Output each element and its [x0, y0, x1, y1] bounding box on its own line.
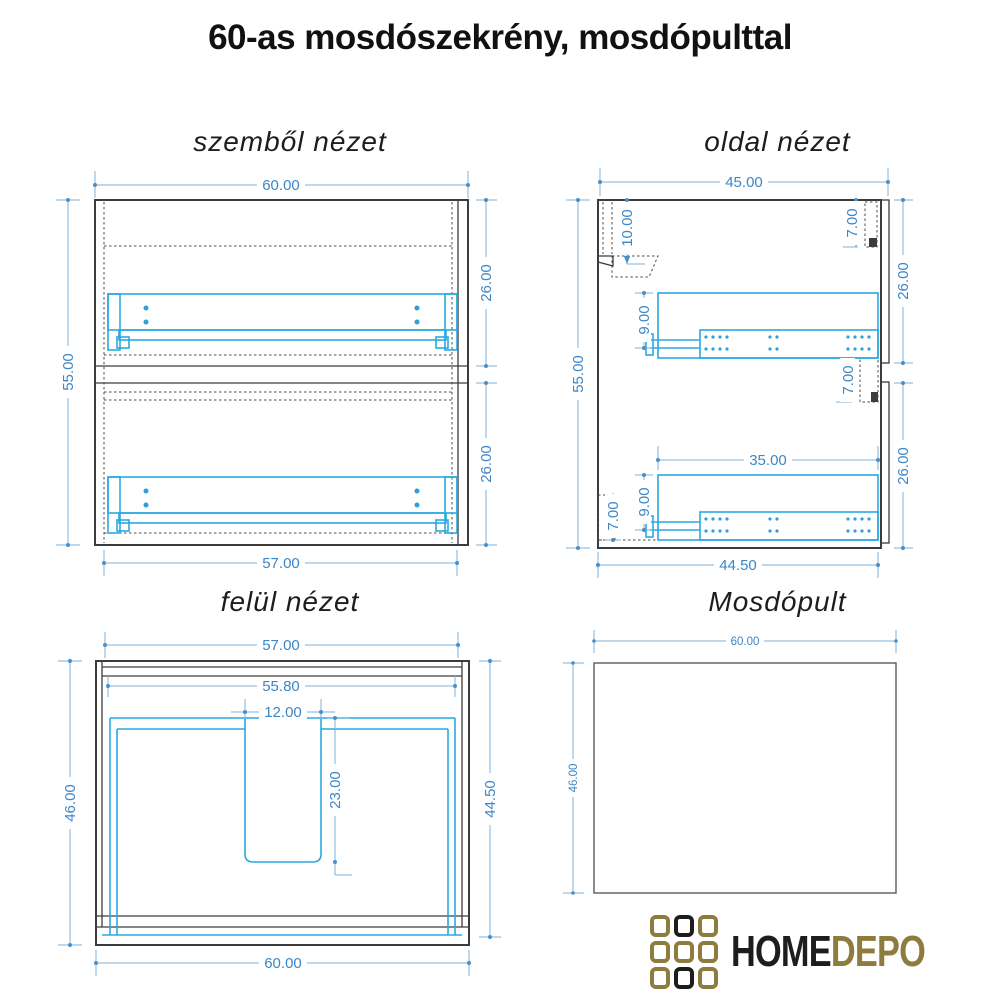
counter-outline: [594, 663, 896, 893]
dim-side-bottom-depth: 44.50: [596, 552, 880, 578]
dim-top-depth-right: 44.50: [479, 659, 501, 939]
svg-text:45.00: 45.00: [725, 174, 763, 191]
basin-top-lines: [102, 718, 462, 935]
lower-drawer-side: [646, 475, 878, 540]
page-title: 60-as mosdószekrény, mosdópulttal: [0, 18, 1000, 58]
dim-top-bottom-width: 60.00: [94, 950, 471, 976]
svg-text:9.00: 9.00: [636, 305, 653, 334]
svg-text:26.00: 26.00: [478, 445, 495, 483]
svg-text:60.00: 60.00: [731, 636, 760, 648]
svg-text:57.00: 57.00: [262, 555, 300, 572]
dim-front-top-width: 60.00: [93, 171, 470, 198]
svg-text:12.00: 12.00: [264, 704, 302, 721]
svg-text:7.00: 7.00: [844, 208, 861, 237]
dim-side-top-depth: 45.00: [598, 168, 890, 196]
dim-side-lower-front: 26.00: [894, 381, 913, 550]
svg-text:35.00: 35.00: [749, 452, 787, 469]
front-view-drawing: 60.00 55.00 26.00 26.00: [40, 160, 540, 585]
dim-side-back-rail: 10.00: [619, 198, 645, 264]
svg-text:7.00: 7.00: [840, 365, 857, 394]
dim-cutout-depth: 23.00: [327, 716, 352, 875]
dim-top-depth-left: 46.00: [58, 659, 82, 947]
dim-side-slide-upper: 9.00: [635, 291, 653, 350]
svg-text:44.50: 44.50: [719, 557, 757, 574]
logo-grid-icon: [650, 915, 718, 989]
logo-text-home: HOME: [731, 927, 831, 976]
svg-text:60.00: 60.00: [264, 955, 302, 972]
logo-grid-square: [698, 915, 718, 937]
logo-grid-square: [698, 967, 718, 989]
counter-view-title: Mosdópult: [555, 586, 1000, 618]
top-view-title: felül nézet: [40, 586, 540, 618]
svg-text:44.50: 44.50: [482, 780, 499, 818]
dim-side-slide-lower: 9.00: [635, 473, 653, 532]
siphon-cutout: [245, 718, 321, 862]
svg-text:46.00: 46.00: [568, 764, 580, 793]
svg-text:26.00: 26.00: [895, 447, 912, 485]
svg-text:57.00: 57.00: [262, 637, 300, 654]
dim-side-slide-length: 35.00: [656, 446, 880, 470]
side-view-drawing: 45.00 55.00 26.00 26.00: [555, 160, 1000, 585]
dim-side-front-rail-top: 7.00: [843, 198, 861, 247]
dim-front-bottom-width: 57.00: [102, 550, 459, 576]
svg-text:55.00: 55.00: [60, 353, 77, 391]
slide-screw-holes: [704, 335, 870, 350]
top-view-drawing: 57.00 55.80 12.00 23.00 46.00: [40, 620, 540, 980]
side-view-title: oldal nézet: [555, 126, 1000, 158]
dim-side-upper-front: 26.00: [894, 198, 913, 365]
dim-side-height: 55.00: [566, 198, 590, 550]
svg-text:9.00: 9.00: [636, 487, 653, 516]
dim-front-lower-drawer: 26.00: [476, 381, 497, 547]
counter-view-drawing: 60.00 46.00: [555, 620, 1000, 910]
svg-text:60.00: 60.00: [262, 177, 300, 194]
logo-text-depo: DEPO: [831, 927, 925, 976]
upper-drawer-side: [646, 293, 878, 358]
dim-side-front-rail-mid: 7.00: [836, 358, 857, 402]
dim-counter-width: 60.00: [592, 630, 898, 653]
svg-text:7.00: 7.00: [605, 501, 622, 530]
slide-screw-holes: [704, 517, 870, 532]
dim-top-inner-width: 55.80: [106, 676, 457, 697]
svg-text:46.00: 46.00: [62, 784, 79, 822]
dim-side-back-foot: 7.00: [605, 493, 622, 542]
svg-text:55.00: 55.00: [570, 355, 587, 393]
upper-drawer-box: [108, 294, 457, 350]
logo-grid-square: [698, 941, 718, 963]
lower-drawer-box: [108, 477, 457, 533]
svg-text:55.80: 55.80: [262, 678, 300, 695]
logo-wordmark: HOMEDEPO: [731, 927, 925, 977]
svg-text:23.00: 23.00: [327, 771, 344, 809]
svg-text:26.00: 26.00: [895, 262, 912, 300]
dim-top-width: 57.00: [103, 632, 460, 658]
logo-grid-square: [650, 941, 670, 963]
cabinet-front-outline: [95, 200, 468, 545]
logo-grid-square: [650, 915, 670, 937]
logo-grid-square: [674, 915, 694, 937]
logo-grid-square: [674, 941, 694, 963]
logo-grid-square: [674, 967, 694, 989]
logo-grid-square: [650, 967, 670, 989]
svg-text:26.00: 26.00: [478, 264, 495, 302]
homedepo-logo: HOMEDEPO: [650, 906, 998, 998]
svg-text:10.00: 10.00: [619, 209, 636, 247]
cabinet-front-hidden-lines: [104, 202, 452, 543]
dim-front-upper-drawer: 26.00: [476, 198, 497, 368]
front-view-title: szemből nézet: [40, 126, 540, 158]
dim-front-height: 55.00: [56, 198, 80, 547]
dim-counter-depth: 46.00: [563, 661, 584, 895]
